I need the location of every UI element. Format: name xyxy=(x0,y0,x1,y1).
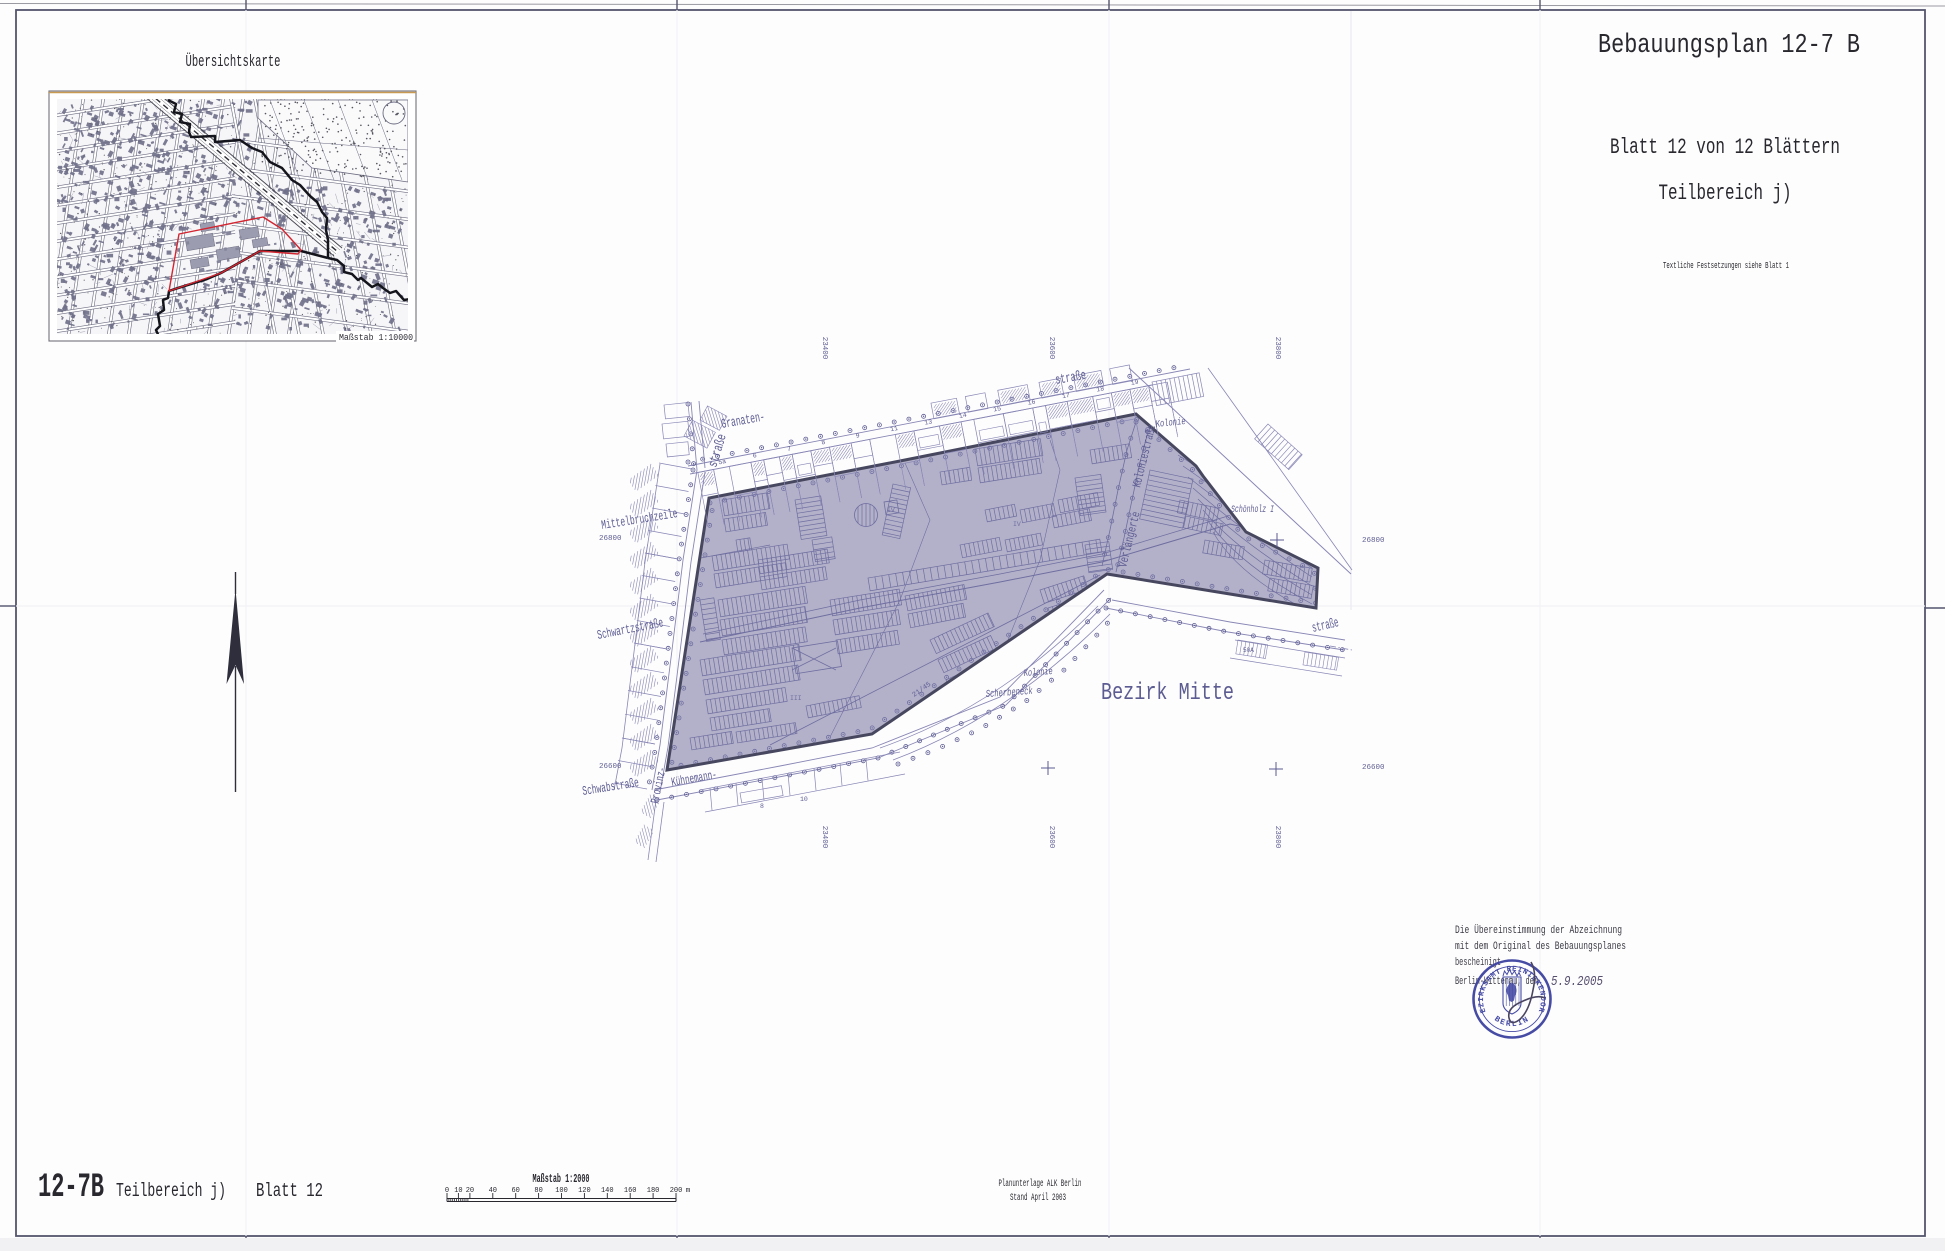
svg-text:40: 40 xyxy=(489,1187,497,1195)
svg-text:120: 120 xyxy=(578,1187,591,1195)
svg-text:20: 20 xyxy=(466,1187,474,1195)
svg-text:26600: 26600 xyxy=(599,763,622,771)
svg-text:Bebauungsplan 12-7 B: Bebauungsplan 12-7 B xyxy=(1598,31,1860,61)
svg-text:100: 100 xyxy=(555,1187,568,1195)
svg-text:5.9.2005: 5.9.2005 xyxy=(1551,975,1603,990)
svg-text:Schönholz I: Schönholz I xyxy=(1231,504,1274,516)
svg-text:Blatt 12: Blatt 12 xyxy=(256,1180,323,1202)
svg-text:19: 19 xyxy=(1130,379,1139,387)
svg-text:17: 17 xyxy=(1061,392,1070,400)
svg-text:Teilbereich j): Teilbereich j) xyxy=(116,1180,226,1202)
svg-text:200: 200 xyxy=(670,1187,683,1195)
svg-text:Maßstab 1:2000: Maßstab 1:2000 xyxy=(533,1172,590,1186)
svg-text:Bezirk Mitte: Bezirk Mitte xyxy=(1101,680,1234,707)
svg-text:18: 18 xyxy=(1096,385,1105,393)
svg-text:8: 8 xyxy=(760,803,764,810)
svg-text:26600: 26600 xyxy=(1362,764,1385,772)
svg-text:Die Übereinstimmung der Abzeic: Die Übereinstimmung der Abzeichnung xyxy=(1455,924,1622,937)
svg-text:Kolonie: Kolonie xyxy=(1023,666,1053,680)
svg-text:80: 80 xyxy=(534,1187,542,1195)
svg-text:23800: 23800 xyxy=(1273,826,1281,849)
svg-text:50A: 50A xyxy=(1243,647,1254,654)
svg-text:m: m xyxy=(686,1187,691,1195)
svg-text:13: 13 xyxy=(924,418,933,426)
svg-text:11: 11 xyxy=(890,425,899,433)
svg-text:Übersichtskarte: Übersichtskarte xyxy=(186,52,281,72)
svg-text:Maßstab 1:10000: Maßstab 1:10000 xyxy=(339,332,413,343)
svg-text:23800: 23800 xyxy=(1273,337,1281,360)
svg-text:14: 14 xyxy=(958,412,967,420)
svg-text:16: 16 xyxy=(1027,398,1036,406)
svg-text:160: 160 xyxy=(624,1187,637,1195)
svg-text:mit dem Original des Bebauungs: mit dem Original des Bebauungsplanes xyxy=(1455,941,1626,953)
svg-text:23400: 23400 xyxy=(820,826,828,849)
svg-text:III: III xyxy=(790,695,802,702)
svg-text:23600: 23600 xyxy=(1047,337,1055,360)
svg-text:Textliche Festsetzungen siehe: Textliche Festsetzungen siehe Blatt 1 xyxy=(1663,260,1789,271)
svg-text:Blatt 12 von 12 Blättern: Blatt 12 von 12 Blättern xyxy=(1610,135,1840,160)
svg-text:26800: 26800 xyxy=(1362,537,1385,545)
svg-text:10: 10 xyxy=(454,1187,462,1195)
svg-text:IV: IV xyxy=(1013,521,1021,528)
svg-text:23600: 23600 xyxy=(1047,826,1055,849)
svg-text:15: 15 xyxy=(993,405,1002,413)
svg-text:bescheinigt: bescheinigt xyxy=(1455,957,1501,969)
svg-text:140: 140 xyxy=(601,1187,614,1195)
svg-text:10: 10 xyxy=(800,796,808,803)
svg-text:Planunterlage ALK Berlin: Planunterlage ALK Berlin xyxy=(999,1178,1082,1190)
svg-text:60: 60 xyxy=(511,1187,519,1195)
svg-text:26800: 26800 xyxy=(599,535,622,543)
svg-text:23400: 23400 xyxy=(820,337,828,360)
svg-text:0: 0 xyxy=(445,1187,449,1195)
svg-text:Stand April 2003: Stand April 2003 xyxy=(1010,1192,1066,1204)
svg-text:12-7B: 12-7B xyxy=(38,1169,104,1207)
svg-text:Teilbereich j): Teilbereich j) xyxy=(1659,181,1792,206)
svg-text:180: 180 xyxy=(647,1187,660,1195)
